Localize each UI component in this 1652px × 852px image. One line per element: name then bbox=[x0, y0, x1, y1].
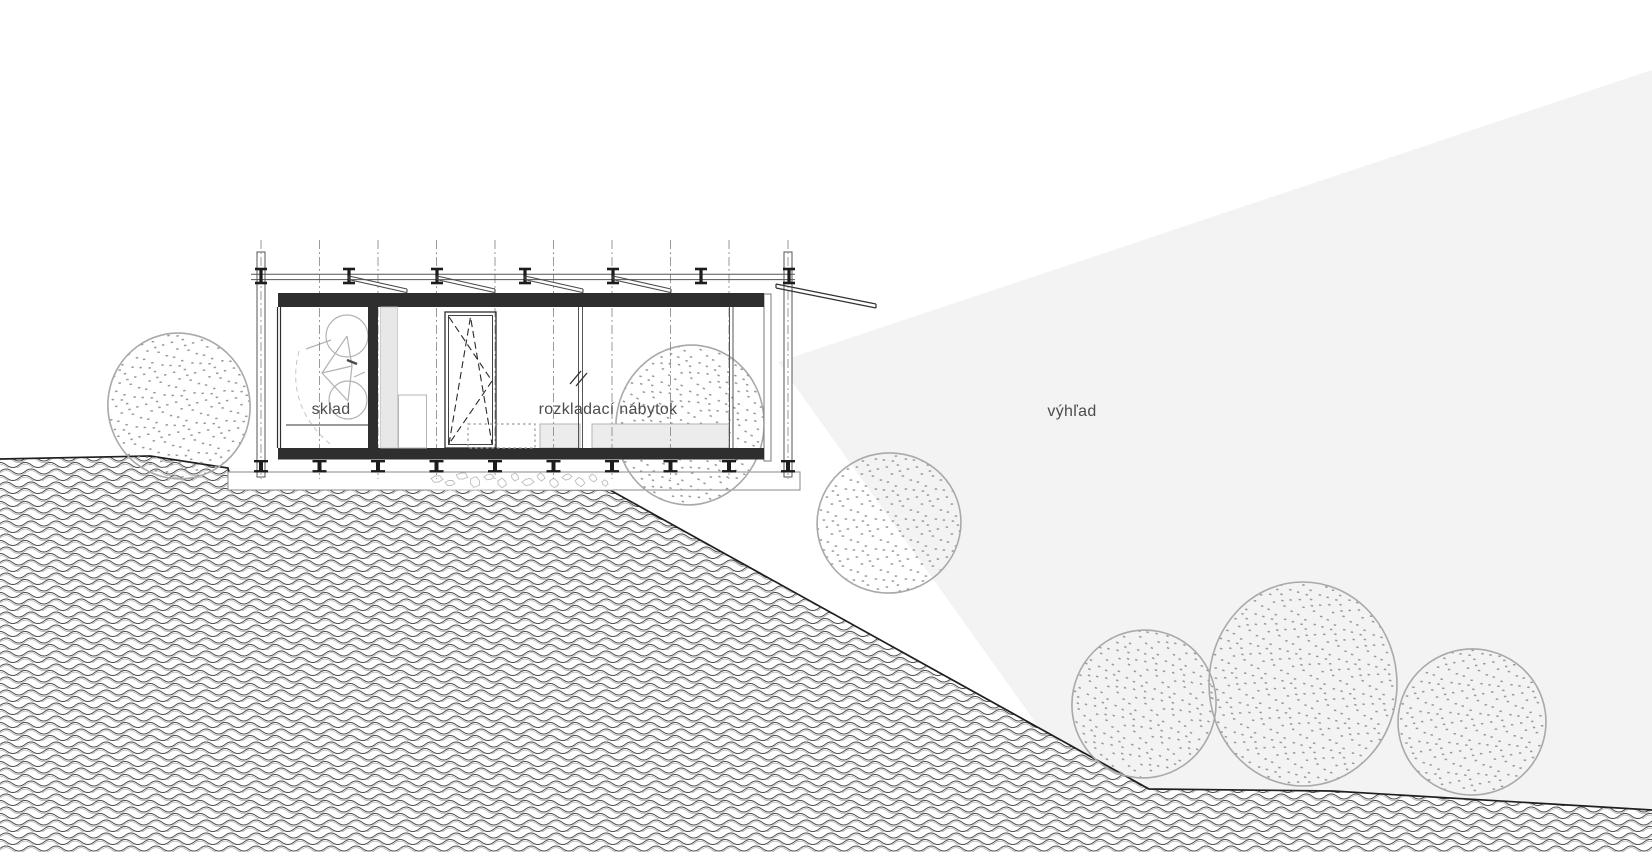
roof-louver-panel bbox=[437, 276, 495, 293]
cabin-section bbox=[251, 240, 876, 479]
architectural-section-drawing: sklad rozkladací nábytok výhľad bbox=[0, 0, 1652, 852]
window-bg bbox=[445, 312, 496, 448]
label-view: výhľad bbox=[1047, 403, 1096, 421]
support-foot bbox=[605, 460, 619, 473]
label-storage: sklad bbox=[312, 401, 351, 419]
corner-post bbox=[764, 294, 771, 461]
interior-wall bbox=[368, 307, 378, 448]
tall-cabinet-panel bbox=[381, 307, 398, 448]
support-foot bbox=[547, 460, 561, 473]
low-cabinet bbox=[399, 395, 427, 448]
floor-band bbox=[278, 448, 764, 460]
folded-furniture-slab bbox=[540, 424, 580, 448]
support-foot bbox=[313, 460, 327, 473]
support-foot bbox=[371, 460, 385, 473]
rail-clamp bbox=[695, 268, 707, 285]
roof-band bbox=[278, 293, 764, 307]
folded-furniture-slab bbox=[592, 424, 729, 448]
roof-louver-panel bbox=[525, 276, 583, 293]
support-foot bbox=[781, 460, 795, 473]
roof-louver-panel bbox=[613, 276, 671, 293]
support-foot bbox=[488, 460, 502, 473]
drawing-canvas bbox=[0, 0, 1652, 852]
storage-room-bg bbox=[281, 307, 368, 448]
label-folding-furniture: rozkladací nábytok bbox=[539, 401, 678, 419]
tree bbox=[1209, 582, 1397, 786]
support-foot bbox=[254, 460, 268, 473]
support-foot bbox=[430, 460, 444, 473]
